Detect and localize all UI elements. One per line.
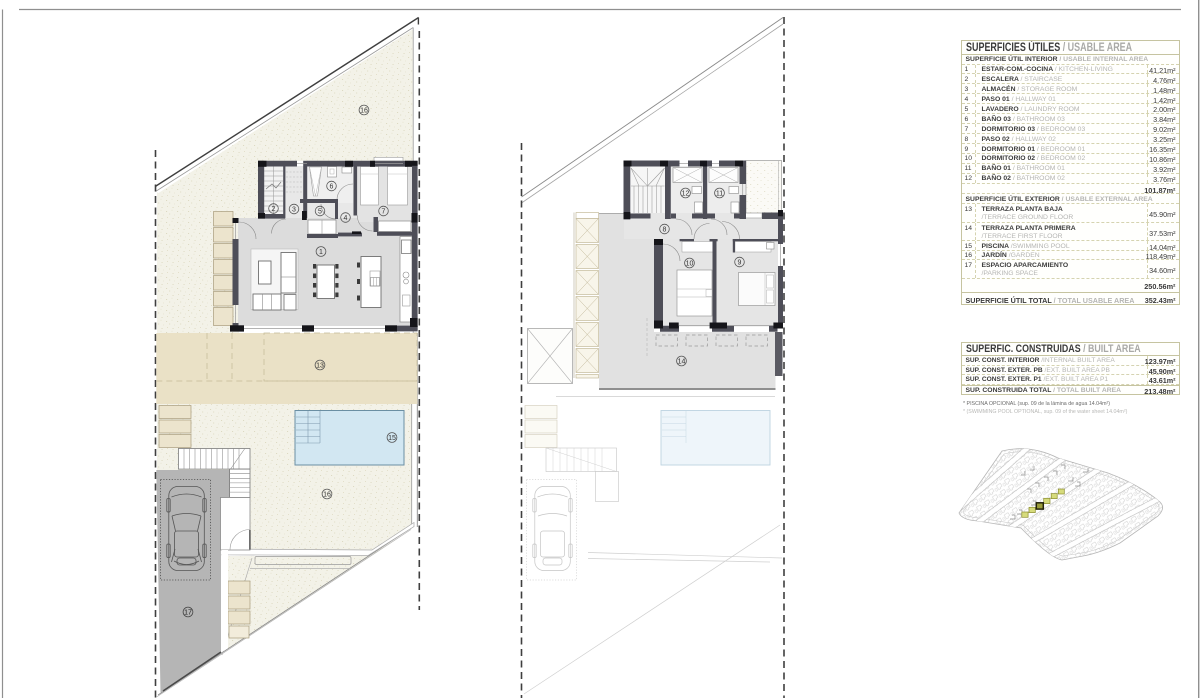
svg-text:16: 16 — [360, 108, 368, 115]
svg-text:17: 17 — [184, 610, 192, 617]
svg-text:13: 13 — [316, 363, 324, 370]
svg-text:4: 4 — [344, 215, 348, 222]
svg-text:12: 12 — [682, 191, 690, 198]
svg-text:8: 8 — [663, 227, 667, 234]
svg-text:16: 16 — [323, 492, 331, 499]
svg-text:1: 1 — [319, 249, 323, 256]
svg-text:10: 10 — [686, 261, 694, 268]
svg-text:2: 2 — [272, 206, 276, 213]
svg-text:11: 11 — [716, 191, 723, 198]
svg-text:6: 6 — [330, 184, 334, 191]
svg-text:14: 14 — [678, 359, 686, 366]
svg-text:7: 7 — [382, 209, 386, 216]
svg-text:9: 9 — [738, 260, 742, 267]
svg-text:5: 5 — [318, 209, 322, 216]
svg-text:3: 3 — [292, 207, 296, 214]
svg-text:15: 15 — [388, 435, 396, 442]
